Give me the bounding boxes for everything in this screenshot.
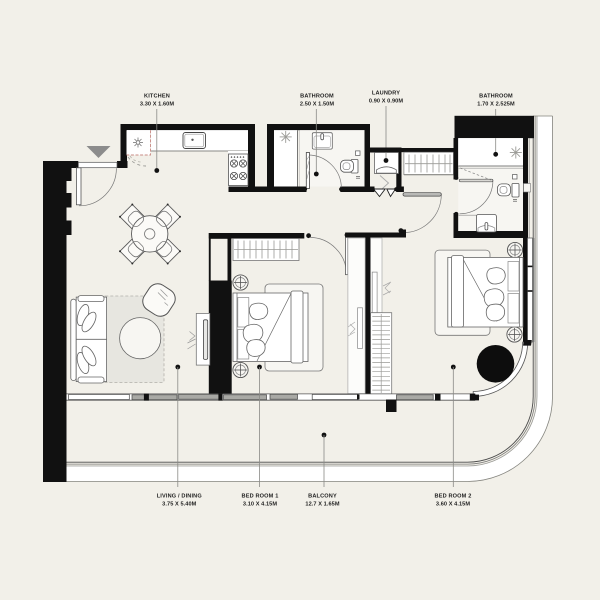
svg-text:0.90 X 0.90M: 0.90 X 0.90M bbox=[369, 99, 403, 105]
svg-text:BALCONY: BALCONY bbox=[308, 494, 337, 500]
svg-text:2.50 X 1.50M: 2.50 X 1.50M bbox=[300, 102, 334, 108]
svg-text:3.10 X 4.15M: 3.10 X 4.15M bbox=[243, 502, 277, 508]
svg-text:KITCHEN: KITCHEN bbox=[144, 94, 170, 100]
svg-text:3.60 X 4.15M: 3.60 X 4.15M bbox=[436, 502, 470, 508]
svg-text:12.7 X 1.65M: 12.7 X 1.65M bbox=[305, 502, 339, 508]
svg-text:3.30 X 1.60M: 3.30 X 1.60M bbox=[140, 102, 174, 108]
svg-text:3.75 X 5.40M: 3.75 X 5.40M bbox=[162, 502, 196, 508]
svg-text:BED ROOM 1: BED ROOM 1 bbox=[242, 494, 279, 500]
svg-text:LAUNDRY: LAUNDRY bbox=[372, 91, 400, 97]
svg-text:BATHROOM: BATHROOM bbox=[479, 94, 513, 100]
svg-text:BATHROOM: BATHROOM bbox=[300, 94, 334, 100]
svg-text:LIVING / DINING: LIVING / DINING bbox=[157, 494, 202, 500]
svg-text:1.70 X 2.525M: 1.70 X 2.525M bbox=[477, 102, 515, 108]
svg-text:BED ROOM 2: BED ROOM 2 bbox=[435, 494, 472, 500]
